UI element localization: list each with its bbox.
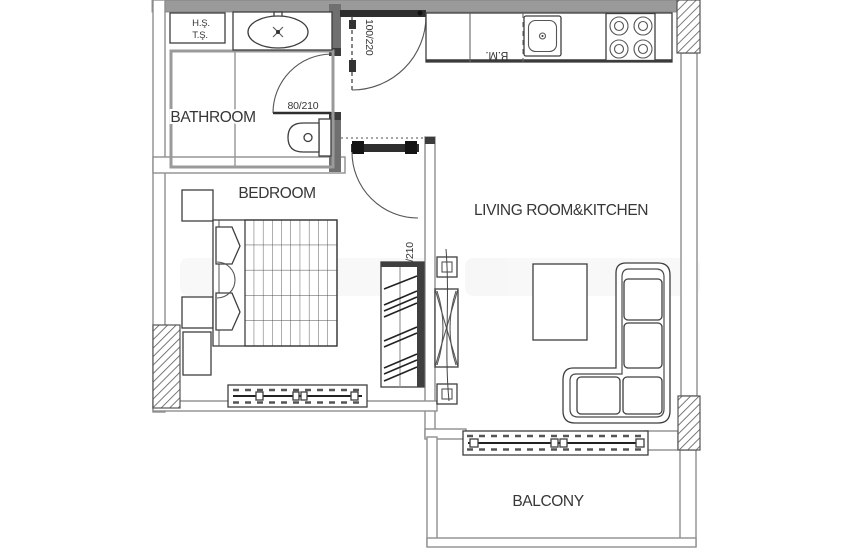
sofa-cushion — [623, 377, 662, 414]
sofa-cushion — [577, 377, 620, 414]
room-living-label: LIVING ROOM&KITCHEN — [474, 202, 648, 219]
window-handle — [636, 439, 644, 447]
hatched-column-bottom-left — [153, 325, 180, 408]
room-bathroom-label: BATHROOM — [170, 109, 255, 126]
wall-balcony-left — [427, 437, 437, 546]
hatched-column-mid-right — [678, 396, 700, 450]
shaft-label-line2: T.Ş. — [192, 30, 208, 41]
stove-icon — [606, 14, 655, 61]
balcony: BALCONY — [463, 431, 648, 510]
bedroom-door-block — [352, 141, 364, 154]
bedroom: BEDROOM — [182, 185, 424, 407]
entry-door: 100/220 — [340, 10, 426, 90]
entry-door-size: 100/220 — [363, 19, 375, 56]
window-handle — [551, 439, 558, 447]
kitchen-counter: B.M. — [426, 13, 672, 62]
bedroom-window — [228, 385, 367, 407]
bedroom-door-block — [405, 141, 417, 154]
bed-icon — [213, 220, 337, 346]
window-handle — [293, 392, 299, 400]
window-handle — [301, 392, 307, 400]
window-handle — [256, 392, 263, 400]
window-handle — [351, 392, 358, 400]
entry-door-hinge — [418, 11, 423, 16]
kitchen-sink-icon — [524, 16, 561, 56]
nightstand — [182, 297, 213, 328]
living-room: LIVING ROOM&KITCHEN — [435, 202, 670, 423]
wall-living-left — [425, 137, 435, 437]
window-handle — [560, 439, 567, 447]
wall-right — [681, 53, 697, 396]
bedroom-door: 90/210 — [341, 138, 425, 273]
balcony-window — [463, 431, 648, 455]
wall-balcony-bottom — [427, 538, 696, 547]
nightstand — [182, 190, 213, 221]
shaft-box: H.Ş. T.Ş. — [170, 13, 225, 43]
shaft-label-line1: H.Ş. — [192, 18, 210, 29]
entry-door-block — [349, 60, 356, 72]
hatched-column-top-right — [677, 0, 700, 53]
entry-door-block — [349, 20, 356, 29]
toilet-icon — [288, 119, 331, 156]
cabinet-label: B.M. — [486, 49, 509, 61]
wall-cap — [425, 137, 435, 144]
wardrobe-icon — [381, 262, 424, 387]
wall-balcony-right — [680, 450, 696, 546]
tv-unit-icon — [435, 249, 458, 404]
wall-window-right — [645, 431, 678, 450]
bathroom: H.Ş. T.Ş. 80/210 BATHROOM — [170, 12, 333, 167]
room-balcony-label: BALCONY — [512, 493, 583, 510]
coffee-table-icon — [533, 264, 587, 340]
floor-plan-drawing: H.Ş. T.Ş. 80/210 BATHROOM — [0, 0, 850, 550]
bedroom-door-arc — [352, 152, 418, 218]
entry-door-header — [340, 10, 426, 17]
wall-bathroom-bedroom — [153, 157, 345, 173]
sofa-cushion — [624, 323, 662, 368]
window-handle — [470, 439, 478, 447]
bedside-cabinet — [183, 332, 211, 375]
sofa-cushion — [624, 279, 662, 320]
vanity-sink-icon — [233, 12, 332, 50]
bathroom-door-size: 80/210 — [288, 100, 319, 112]
floor-plan-page: H.Ş. T.Ş. 80/210 BATHROOM — [0, 0, 850, 550]
room-bedroom-label: BEDROOM — [238, 185, 315, 202]
bathroom-door: 80/210 — [273, 54, 331, 113]
